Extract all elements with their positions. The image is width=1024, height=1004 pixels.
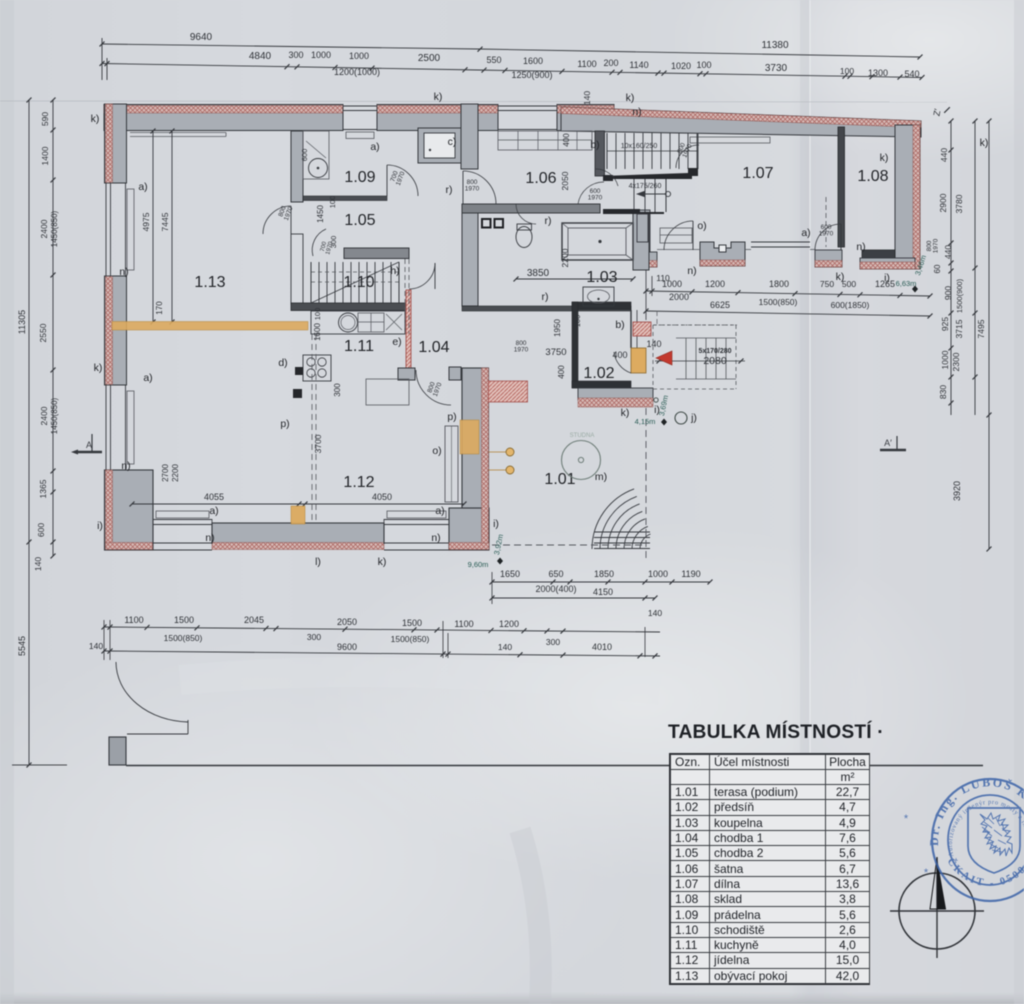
svg-text:400: 400 bbox=[612, 350, 627, 360]
svg-text:1500: 1500 bbox=[402, 618, 422, 628]
svg-text:2400: 2400 bbox=[39, 406, 49, 425]
svg-text:2300: 2300 bbox=[951, 352, 961, 371]
svg-text:j): j) bbox=[690, 412, 697, 424]
svg-text:550: 550 bbox=[486, 55, 501, 65]
svg-text:2700: 2700 bbox=[161, 464, 170, 482]
svg-text:3920: 3920 bbox=[952, 481, 962, 501]
svg-text:3715: 3715 bbox=[954, 319, 964, 338]
svg-text:1200(1000): 1200(1000) bbox=[334, 67, 380, 77]
svg-text:k): k) bbox=[836, 271, 845, 283]
svg-text:100: 100 bbox=[313, 308, 322, 321]
svg-text:1.03: 1.03 bbox=[586, 269, 617, 286]
svg-text:1450: 1450 bbox=[316, 205, 325, 223]
svg-text:100: 100 bbox=[573, 315, 582, 328]
svg-text:925: 925 bbox=[940, 317, 950, 331]
svg-text:r): r) bbox=[545, 215, 552, 227]
svg-text:300: 300 bbox=[546, 637, 560, 647]
svg-text:1.07: 1.07 bbox=[742, 165, 773, 182]
svg-text:i): i) bbox=[884, 272, 890, 284]
svg-text:1970: 1970 bbox=[588, 195, 603, 202]
svg-text:170: 170 bbox=[155, 301, 164, 315]
svg-text:1300: 1300 bbox=[868, 68, 888, 78]
svg-text:1970: 1970 bbox=[514, 347, 529, 354]
svg-text:1.04: 1.04 bbox=[418, 339, 449, 356]
svg-text:11305: 11305 bbox=[17, 310, 27, 334]
svg-text:650: 650 bbox=[548, 569, 563, 579]
svg-text:1500(850): 1500(850) bbox=[164, 633, 203, 643]
svg-text:STUDNA: STUDNA bbox=[570, 433, 595, 439]
svg-text:600: 600 bbox=[300, 149, 309, 162]
svg-text:k): k) bbox=[880, 152, 889, 164]
svg-text:k): k) bbox=[378, 556, 387, 568]
svg-text:4840: 4840 bbox=[249, 51, 272, 62]
svg-text:4150: 4150 bbox=[593, 587, 613, 597]
svg-text:9600: 9600 bbox=[337, 642, 357, 652]
svg-text:1100: 1100 bbox=[124, 615, 143, 625]
svg-text:k): k) bbox=[434, 91, 443, 103]
svg-text:2900: 2900 bbox=[938, 193, 948, 212]
svg-text:4,15m: 4,15m bbox=[635, 417, 656, 426]
svg-text:l): l) bbox=[315, 556, 321, 568]
svg-text:1250(900): 1250(900) bbox=[511, 70, 552, 80]
svg-text:100: 100 bbox=[840, 66, 854, 76]
svg-text:n): n) bbox=[121, 460, 130, 472]
svg-text:1140: 1140 bbox=[629, 60, 648, 70]
svg-text:d): d) bbox=[278, 357, 287, 369]
svg-text:1500(850): 1500(850) bbox=[391, 634, 430, 644]
svg-text:11380: 11380 bbox=[761, 40, 789, 51]
svg-text:2045: 2045 bbox=[244, 615, 264, 625]
svg-text:1600: 1600 bbox=[313, 323, 322, 341]
svg-text:3850: 3850 bbox=[527, 268, 550, 279]
svg-text:n): n) bbox=[119, 266, 128, 278]
svg-text:1200: 1200 bbox=[499, 619, 519, 629]
svg-text:440: 440 bbox=[939, 148, 949, 162]
svg-text:o): o) bbox=[432, 445, 441, 457]
svg-text:1.05: 1.05 bbox=[344, 212, 375, 229]
svg-text:140: 140 bbox=[89, 641, 103, 651]
svg-text:a): a) bbox=[143, 372, 152, 384]
svg-text:A′: A′ bbox=[884, 438, 892, 448]
svg-text:9,60m: 9,60m bbox=[468, 560, 489, 569]
svg-text:140: 140 bbox=[648, 608, 662, 618]
svg-text:2050: 2050 bbox=[560, 171, 570, 190]
svg-text:140: 140 bbox=[646, 339, 661, 349]
svg-text:1100: 1100 bbox=[577, 59, 596, 69]
svg-text:k): k) bbox=[621, 407, 630, 419]
svg-text:750: 750 bbox=[820, 279, 834, 289]
svg-text:600: 600 bbox=[36, 523, 46, 537]
svg-text:1500(900): 1500(900) bbox=[955, 278, 964, 313]
svg-text:4050: 4050 bbox=[372, 492, 392, 502]
svg-text:1100: 1100 bbox=[454, 619, 473, 629]
svg-text:1200: 1200 bbox=[705, 279, 725, 289]
svg-text:1020: 1020 bbox=[671, 61, 691, 71]
svg-text:1190: 1190 bbox=[681, 569, 700, 579]
svg-text:1500: 1500 bbox=[174, 615, 194, 625]
svg-text:2200: 2200 bbox=[171, 464, 180, 482]
svg-text:7495: 7495 bbox=[976, 319, 986, 338]
svg-text:1000: 1000 bbox=[311, 50, 331, 60]
svg-text:1450(850): 1450(850) bbox=[50, 210, 59, 247]
svg-text:n): n) bbox=[431, 532, 440, 544]
svg-text:140: 140 bbox=[498, 642, 512, 652]
svg-text:p): p) bbox=[280, 418, 289, 430]
svg-text:4975: 4975 bbox=[141, 212, 151, 231]
svg-text:300: 300 bbox=[307, 632, 321, 642]
svg-text:140: 140 bbox=[33, 557, 43, 571]
svg-text:3750: 3750 bbox=[545, 347, 566, 358]
svg-text:1.06: 1.06 bbox=[525, 170, 556, 187]
svg-text:c): c) bbox=[448, 136, 457, 148]
svg-text:3780: 3780 bbox=[954, 194, 964, 213]
svg-text:300: 300 bbox=[333, 383, 342, 397]
svg-text:1.09: 1.09 bbox=[344, 169, 375, 186]
svg-text:1365: 1365 bbox=[38, 479, 48, 498]
svg-text:1650: 1650 bbox=[500, 569, 520, 579]
svg-text:1000: 1000 bbox=[349, 51, 369, 61]
svg-text:m): m) bbox=[595, 471, 607, 483]
svg-text:a): a) bbox=[209, 505, 218, 517]
svg-text:A: A bbox=[86, 440, 92, 450]
svg-text:1.10: 1.10 bbox=[343, 274, 374, 291]
svg-text:4010: 4010 bbox=[592, 642, 612, 652]
svg-text:p): p) bbox=[447, 411, 456, 423]
svg-text:n): n) bbox=[856, 241, 865, 253]
svg-text:i): i) bbox=[493, 518, 499, 530]
svg-text:1.13: 1.13 bbox=[194, 274, 225, 291]
svg-text:200: 200 bbox=[603, 58, 618, 68]
svg-text:900: 900 bbox=[943, 286, 953, 300]
svg-text:100: 100 bbox=[328, 196, 337, 209]
svg-text:o): o) bbox=[697, 220, 706, 232]
svg-text:1970: 1970 bbox=[465, 186, 480, 193]
svg-text:2200: 2200 bbox=[560, 248, 570, 267]
svg-text:60: 60 bbox=[933, 264, 942, 273]
svg-text:r): r) bbox=[446, 184, 453, 196]
svg-text:r): r) bbox=[542, 291, 549, 303]
svg-text:2050: 2050 bbox=[337, 617, 357, 627]
svg-text:n): n) bbox=[205, 532, 214, 544]
svg-text:h): h) bbox=[390, 265, 399, 277]
svg-text:300: 300 bbox=[288, 50, 303, 60]
svg-text:830: 830 bbox=[938, 385, 948, 399]
svg-text:1950: 1950 bbox=[553, 319, 562, 337]
svg-text:*: * bbox=[924, 867, 929, 879]
svg-text:k): k) bbox=[94, 362, 103, 374]
svg-text:9640: 9640 bbox=[190, 32, 213, 43]
svg-text:k): k) bbox=[91, 113, 100, 125]
svg-text:1000: 1000 bbox=[940, 350, 950, 369]
svg-text:540: 540 bbox=[904, 69, 919, 79]
svg-text:a): a) bbox=[138, 181, 147, 193]
svg-text:1000: 1000 bbox=[648, 569, 668, 579]
svg-text:b): b) bbox=[590, 139, 599, 151]
svg-text:a): a) bbox=[370, 141, 379, 153]
svg-text:3700: 3700 bbox=[313, 434, 323, 453]
svg-text:2550: 2550 bbox=[38, 323, 48, 342]
svg-text:1.08: 1.08 bbox=[857, 168, 888, 185]
svg-text:2000: 2000 bbox=[669, 292, 689, 302]
svg-text:n): n) bbox=[687, 265, 696, 277]
svg-text:1800: 1800 bbox=[769, 279, 789, 289]
svg-text:1850: 1850 bbox=[594, 569, 614, 579]
svg-text:3730: 3730 bbox=[765, 63, 788, 74]
svg-text:b): b) bbox=[615, 319, 624, 331]
svg-text:i): i) bbox=[97, 520, 103, 532]
svg-text:4x175/260: 4x175/260 bbox=[629, 183, 662, 190]
svg-text:2400: 2400 bbox=[39, 219, 49, 238]
svg-text:1.01: 1.01 bbox=[544, 471, 575, 488]
svg-text:7445: 7445 bbox=[160, 212, 170, 231]
svg-text:4055: 4055 bbox=[204, 492, 224, 502]
svg-text:10x160/250: 10x160/250 bbox=[621, 143, 658, 150]
svg-text:1450(850): 1450(850) bbox=[50, 397, 59, 434]
svg-text:k): k) bbox=[626, 92, 635, 104]
svg-text:1970: 1970 bbox=[933, 238, 940, 253]
svg-text:5x170/280: 5x170/280 bbox=[698, 348, 731, 355]
svg-text:2500: 2500 bbox=[418, 53, 441, 64]
svg-text:2000(400): 2000(400) bbox=[535, 584, 576, 594]
svg-text:1000: 1000 bbox=[662, 279, 682, 289]
svg-text:140: 140 bbox=[582, 91, 592, 105]
svg-text:a): a) bbox=[801, 227, 810, 239]
svg-text:100: 100 bbox=[696, 60, 711, 70]
svg-text:400: 400 bbox=[557, 365, 566, 379]
svg-text:1.12: 1.12 bbox=[343, 474, 374, 491]
svg-text:400: 400 bbox=[562, 133, 571, 147]
svg-text:6,63m: 6,63m bbox=[896, 279, 917, 288]
svg-text:5545: 5545 bbox=[17, 636, 27, 656]
svg-text:e): e) bbox=[392, 336, 401, 348]
svg-text:600(1850): 600(1850) bbox=[831, 300, 870, 310]
svg-text:1500(850): 1500(850) bbox=[759, 297, 798, 307]
svg-text:6625: 6625 bbox=[710, 300, 730, 310]
svg-text:590: 590 bbox=[40, 112, 50, 126]
svg-text:1.11: 1.11 bbox=[344, 338, 374, 355]
svg-text:a): a) bbox=[435, 505, 444, 517]
svg-text:*: * bbox=[904, 813, 909, 825]
svg-text:440: 440 bbox=[943, 245, 953, 259]
svg-text:k): k) bbox=[980, 137, 989, 149]
svg-text:1400: 1400 bbox=[40, 146, 50, 165]
svg-text:1600: 1600 bbox=[523, 56, 543, 66]
svg-text:n): n) bbox=[632, 106, 641, 118]
svg-text:1.02: 1.02 bbox=[583, 365, 614, 382]
